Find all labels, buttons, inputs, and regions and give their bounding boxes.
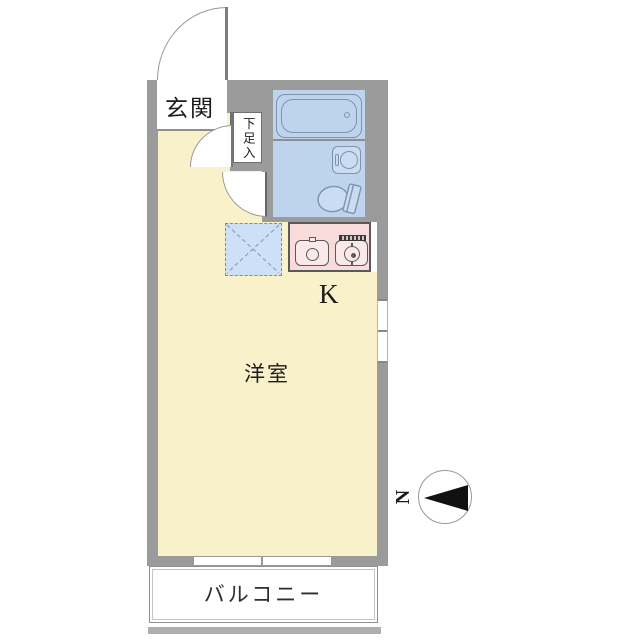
stove-grill-icon: [339, 235, 366, 241]
compass-icon: [418, 470, 472, 524]
washbasin-icon: [332, 146, 361, 174]
right-window-divider: [378, 330, 387, 332]
stove-burner-center: [351, 253, 356, 258]
stove-burner-tick-bottom: [351, 261, 353, 265]
compass-arrow-icon: [424, 485, 468, 511]
kitchen-sink-icon: [295, 240, 329, 266]
kitchen-label: K: [319, 281, 339, 308]
right-wall-window: [377, 299, 388, 363]
washbasin-tap: [335, 154, 339, 166]
counter-wall-gap: [371, 222, 377, 272]
wall-left: [147, 80, 158, 566]
washing-machine-space-icon: [225, 223, 282, 276]
kitchen-sink-drain: [306, 248, 319, 261]
compass-north-label: N: [393, 490, 413, 504]
toilet-icon: [317, 180, 365, 218]
shoe-storage-label: 下足入: [241, 117, 254, 161]
floorplan-canvas: 下足入: [0, 0, 640, 640]
shoe-storage-box: 下足入: [230, 112, 262, 163]
stove-burner: [344, 246, 360, 262]
balcony-area: バルコニー: [149, 566, 378, 623]
stove-icon: [335, 240, 368, 266]
wall-stub-below-shoebox: [230, 163, 273, 171]
bathtub-drain: [344, 112, 350, 118]
stove-burner-tick-top: [351, 243, 353, 247]
kitchen-faucet-icon: [309, 237, 316, 242]
western-room-label: 洋室: [244, 364, 290, 385]
entrance-label: 玄関: [165, 97, 215, 120]
entrance-door-leaf-icon: [225, 7, 228, 80]
bathtub-icon: [276, 94, 362, 138]
bottom-wall-window: [193, 556, 332, 566]
entrance-door-swing-icon: [157, 7, 227, 80]
bathroom-divider-line: [273, 139, 365, 141]
kitchen-counter: [288, 222, 371, 272]
washbasin-bowl: [340, 151, 358, 169]
ground-strip: [148, 627, 381, 634]
balcony-label: バルコニー: [204, 584, 324, 605]
wall-corner-above-shoebox: [227, 92, 262, 113]
bottom-window-divider: [261, 557, 263, 565]
